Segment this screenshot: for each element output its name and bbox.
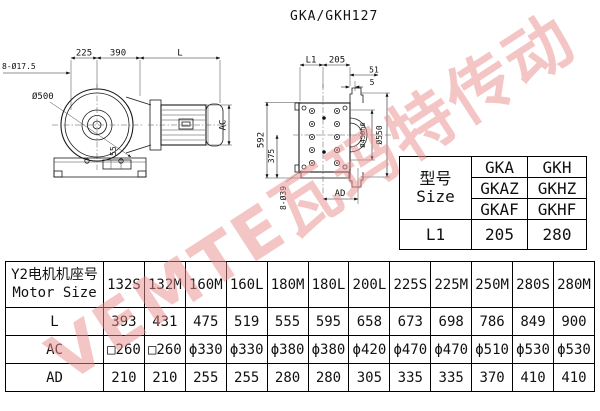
dim-225: 225 [76, 49, 92, 59]
cell-AD: 210 [104, 364, 145, 392]
cell-L: 900 [553, 308, 594, 336]
motor-size-col: 132S [104, 262, 145, 308]
cell-AD: 255 [226, 364, 267, 392]
cell-L: 519 [226, 308, 267, 336]
cell-L: 431 [144, 308, 185, 336]
motor-size-col: 200L [349, 262, 390, 308]
dim-5: 5 [370, 78, 375, 87]
cell-AD: 305 [349, 364, 390, 392]
dim-shaft: 55 [109, 146, 118, 156]
cell-AD: 410 [553, 364, 594, 392]
dim-205: 205 [329, 56, 345, 66]
motor-size-col: 280M [553, 262, 594, 308]
motor-size-col: 180M [267, 262, 308, 308]
motor-header-en: Motor Size [6, 285, 103, 303]
dim-592: 592 [257, 132, 267, 148]
cell-L: 595 [308, 308, 349, 336]
cell-L: 658 [349, 308, 390, 336]
row-label-AC: AC [6, 336, 104, 364]
motor-size-col: 225M [431, 262, 472, 308]
variant-gkhf: GKHF [528, 199, 587, 220]
motor-size-col: 132M [144, 262, 185, 308]
dim-bolt-holes: 8-Ø17.5 [2, 61, 36, 71]
dim-diameter: Ø500 [32, 91, 54, 102]
row-label-L: L [6, 308, 104, 336]
variant-gkaf: GKAF [472, 199, 528, 220]
left-dimension-lines: 225 390 L 8-Ø17.5 Ø500 [2, 49, 220, 158]
size-header-en: Size [400, 188, 471, 206]
cell-AC: ϕ530 [553, 336, 594, 364]
cell-AC: ϕ420 [349, 336, 390, 364]
motor-size-col: 250M [472, 262, 513, 308]
cell-AC: ϕ330 [226, 336, 267, 364]
motor-size-col: 160L [226, 262, 267, 308]
cell-AD: 210 [144, 364, 185, 392]
motor-size-col: 280S [513, 262, 554, 308]
cell-AD: 280 [267, 364, 308, 392]
cell-AC: ϕ470 [390, 336, 431, 364]
motor-table: Y2电机机座号 Motor Size 132S 132M 160M 160L 1… [5, 261, 595, 392]
drawing-sheet: GKA/GKH127 225 390 L 8-Ø17.5 Ø500 [0, 0, 600, 411]
cell-AC: □260 [144, 336, 185, 364]
cell-AC: □260 [104, 336, 145, 364]
gearbox-face [52, 84, 142, 170]
cell-AD: 410 [513, 364, 554, 392]
dim-ad: AD [335, 189, 346, 199]
l1-label: L1 [400, 220, 472, 250]
cell-AD: 280 [308, 364, 349, 392]
dim-390: 390 [110, 49, 126, 59]
gearbox-housing: 55 [54, 97, 161, 177]
motor [148, 104, 228, 146]
size-table-header: 型号 Size [400, 157, 472, 220]
cell-AC: ϕ510 [472, 336, 513, 364]
cell-L: 673 [390, 308, 431, 336]
cell-L: 698 [431, 308, 472, 336]
dim-bolt-holes-39: 8-Ø39 [278, 186, 288, 210]
cell-AD: 335 [431, 364, 472, 392]
cell-AC: ϕ380 [267, 336, 308, 364]
cell-AD: 335 [390, 364, 431, 392]
drawing-title: GKA/GKH127 [290, 9, 378, 24]
variant-gka: GKA [472, 157, 528, 178]
l1-value-gka: 205 [472, 220, 528, 250]
cell-L: 555 [267, 308, 308, 336]
cell-L: 786 [472, 308, 513, 336]
motor-size-col: 160M [185, 262, 226, 308]
dim-51: 51 [369, 66, 379, 75]
bolt-symbols [302, 106, 347, 169]
dim-L: L [177, 49, 182, 59]
cell-AC: ϕ380 [308, 336, 349, 364]
motor-size-col: 180L [308, 262, 349, 308]
variant-gkhz: GKHZ [528, 178, 587, 199]
size-table: 型号 Size GKA GKH GKAZ GKHZ GKAF GKHF L1 2… [399, 156, 587, 250]
variant-gkaz: GKAZ [472, 178, 528, 199]
right-drawing: L1 205 51 5 592 375 8-Ø39 AD Ø450h6 [255, 48, 405, 218]
variant-gkh: GKH [528, 157, 587, 178]
size-header-cn: 型号 [400, 170, 471, 188]
l1-value-gkh: 280 [528, 220, 587, 250]
dim-375: 375 [267, 149, 276, 164]
motor-table-header: Y2电机机座号 Motor Size [6, 262, 104, 308]
cell-L: 849 [513, 308, 554, 336]
cell-AC: ϕ470 [431, 336, 472, 364]
dim-l1: L1 [306, 56, 317, 66]
row-label-AD: AD [6, 364, 104, 392]
cell-L: 393 [104, 308, 145, 336]
left-drawing: 225 390 L 8-Ø17.5 Ø500 [0, 48, 250, 208]
cell-AD: 370 [472, 364, 513, 392]
motor-size-col: 225S [390, 262, 431, 308]
cell-L: 475 [185, 308, 226, 336]
motor-header-cn: Y2电机机座号 [6, 267, 103, 285]
cell-AC: ϕ530 [513, 336, 554, 364]
dim-ac: AC [219, 120, 229, 131]
cell-AC: ϕ330 [185, 336, 226, 364]
cell-AD: 255 [185, 364, 226, 392]
